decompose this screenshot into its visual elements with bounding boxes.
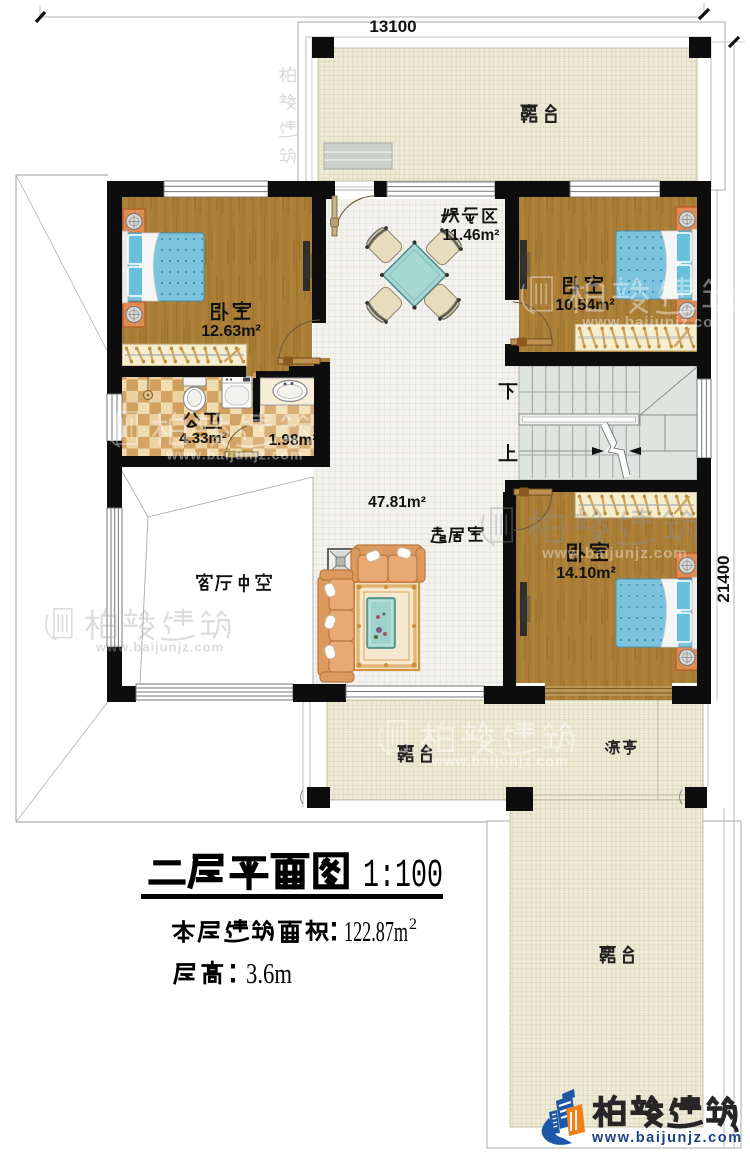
svg-text:www.baijunjz.com: www.baijunjz.com: [541, 545, 687, 562]
svg-text:1:100: 1:100: [363, 854, 443, 899]
svg-text:10.54m²: 10.54m²: [555, 297, 615, 314]
svg-text:122.87m: 122.87m: [344, 917, 408, 948]
svg-text:www.baijunjz.com: www.baijunjz.com: [431, 753, 569, 769]
svg-text:21400: 21400: [714, 555, 733, 602]
svg-text:14.10m²: 14.10m²: [556, 565, 616, 582]
svg-text:www.baijunjz.com: www.baijunjz.com: [166, 447, 304, 463]
svg-text:www.baijunjz.com: www.baijunjz.com: [591, 1130, 743, 1146]
svg-text:www.baijunjz.com: www.baijunjz.com: [95, 640, 224, 655]
svg-text:11.46m²: 11.46m²: [443, 227, 500, 244]
svg-text:47.81m²: 47.81m²: [368, 494, 426, 511]
svg-text:12.63m²: 12.63m²: [201, 323, 261, 340]
svg-text:2: 2: [409, 916, 417, 933]
svg-text:www.baijunjz.com: www.baijunjz.com: [581, 314, 727, 331]
svg-text:13100: 13100: [369, 17, 416, 36]
svg-text:3.6m: 3.6m: [246, 959, 292, 990]
